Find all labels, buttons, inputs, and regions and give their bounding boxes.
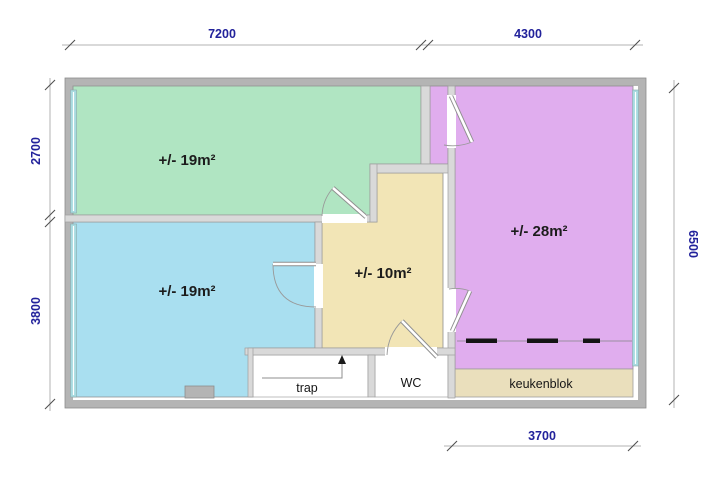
floor-plan-page: 7200 4300 2700 3800 6500 3700 bbox=[0, 0, 726, 488]
dimension-bottom-value: 3700 bbox=[528, 429, 556, 443]
wc-label: WC bbox=[401, 376, 422, 390]
room-right-label: +/- 28m² bbox=[510, 223, 567, 240]
dimension-right-value: 6500 bbox=[686, 230, 700, 258]
room-top-left bbox=[73, 86, 421, 215]
window-right bbox=[633, 90, 639, 366]
dimension-right: 6500 bbox=[669, 80, 700, 408]
dimension-top: 7200 4300 bbox=[62, 27, 643, 50]
dimension-left-lower-value: 3800 bbox=[29, 297, 43, 325]
dimension-top-left-value: 7200 bbox=[208, 27, 236, 41]
floor-plan-drawing: 7200 4300 2700 3800 6500 3700 bbox=[0, 0, 726, 488]
chimney bbox=[185, 386, 214, 398]
dimension-bottom: 3700 bbox=[444, 429, 641, 451]
window-left-upper bbox=[71, 90, 77, 213]
room-bottom-left-label: +/- 19m² bbox=[158, 283, 215, 300]
hall-label: +/- 10m² bbox=[354, 265, 411, 282]
room-top-left-label: +/- 19m² bbox=[158, 152, 215, 169]
window-left-lower bbox=[71, 224, 77, 397]
dimension-left: 2700 3800 bbox=[29, 78, 55, 411]
stairs-label: trap bbox=[296, 381, 318, 395]
kitchen-label: keukenblok bbox=[509, 377, 573, 391]
dimension-top-right-value: 4300 bbox=[514, 27, 542, 41]
room-right-entry-nook bbox=[430, 86, 448, 164]
dimension-left-upper-value: 2700 bbox=[29, 137, 43, 165]
